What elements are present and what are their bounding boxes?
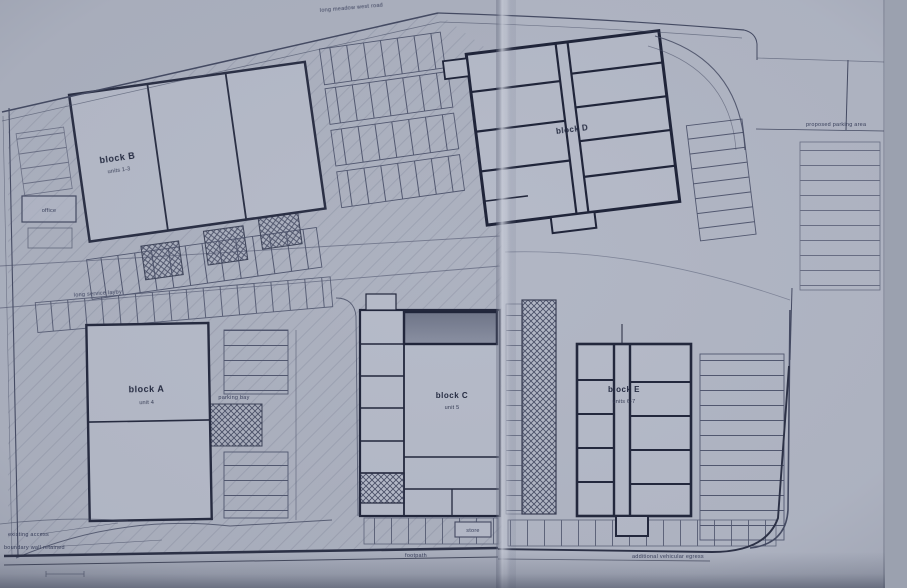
bottom-scan-shadow <box>0 552 907 588</box>
siteplan-drawing: block B units 1-3 block D block A unit 4 <box>0 0 907 588</box>
scan-vignette <box>0 0 907 588</box>
siteplan-scan: block B units 1-3 block D block A unit 4 <box>0 0 907 588</box>
scan-edge-band <box>885 0 907 588</box>
